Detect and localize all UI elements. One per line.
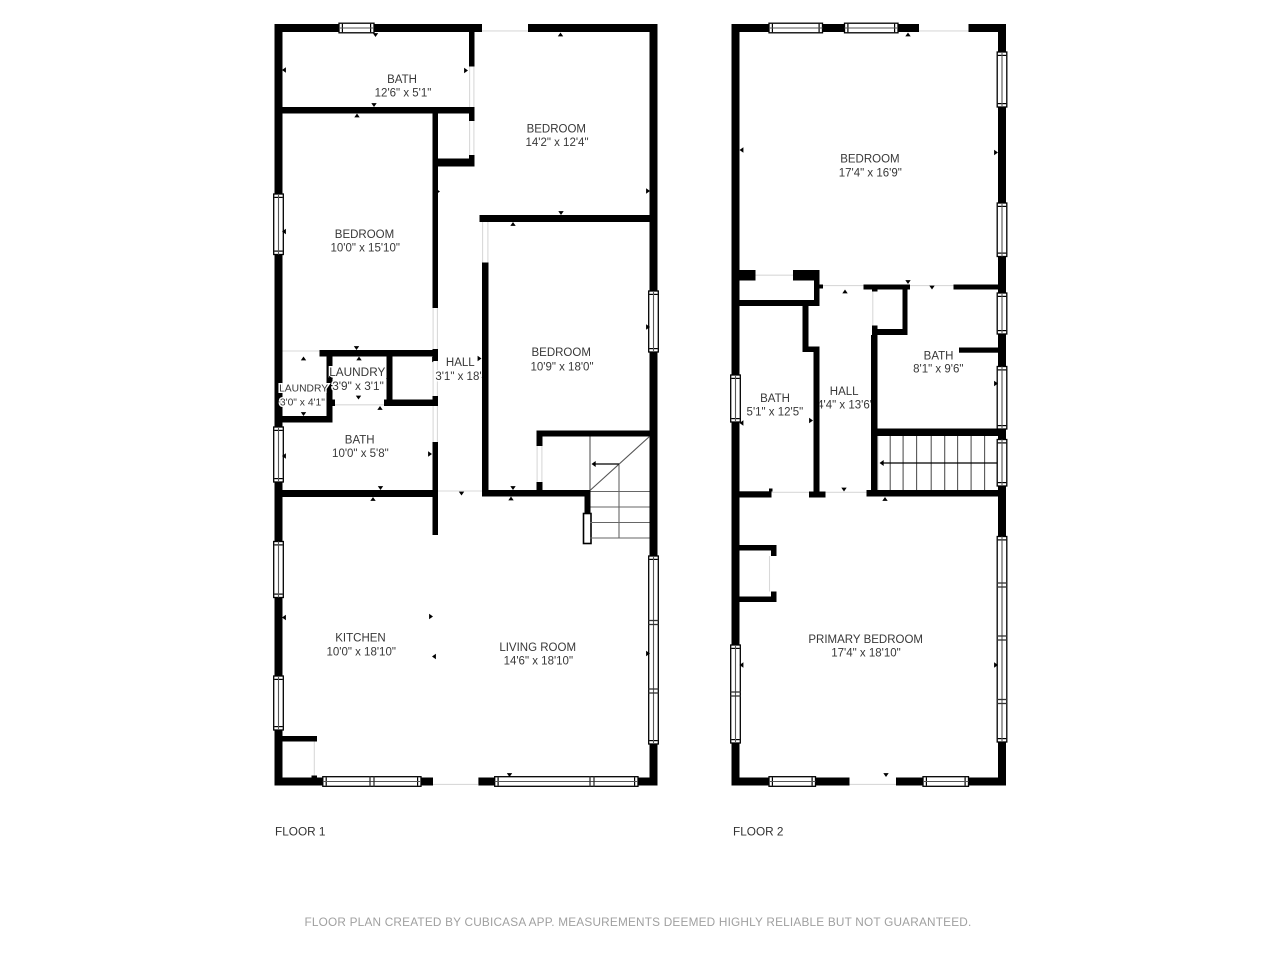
svg-text:14'2" x 12'4": 14'2" x 12'4" bbox=[525, 137, 588, 149]
svg-text:BATH: BATH bbox=[924, 351, 954, 363]
svg-text:12'6" x 5'1": 12'6" x 5'1" bbox=[375, 88, 432, 100]
svg-text:10'0" x 5'8": 10'0" x 5'8" bbox=[332, 448, 389, 460]
svg-text:8'1" x 9'6": 8'1" x 9'6" bbox=[913, 364, 963, 376]
svg-text:FLOOR 2: FLOOR 2 bbox=[733, 825, 783, 839]
svg-text:PRIMARY BEDROOM: PRIMARY BEDROOM bbox=[808, 634, 923, 646]
svg-text:3'0" x 4'1": 3'0" x 4'1" bbox=[280, 397, 325, 408]
svg-text:FLOOR 1: FLOOR 1 bbox=[275, 825, 325, 839]
svg-text:10'0" x 15'10": 10'0" x 15'10" bbox=[330, 242, 399, 254]
svg-text:10'0" x 18'10": 10'0" x 18'10" bbox=[326, 646, 395, 658]
svg-text:KITCHEN: KITCHEN bbox=[335, 632, 385, 644]
svg-text:BEDROOM: BEDROOM bbox=[527, 124, 586, 136]
svg-text:HALL: HALL bbox=[446, 357, 475, 369]
svg-text:BEDROOM: BEDROOM bbox=[531, 347, 590, 359]
svg-text:10'9" x 18'0": 10'9" x 18'0" bbox=[530, 361, 593, 373]
svg-text:14'6" x 18'10": 14'6" x 18'10" bbox=[504, 656, 573, 668]
svg-text:LAUNDRY: LAUNDRY bbox=[329, 365, 385, 379]
svg-text:17'4" x 18'10": 17'4" x 18'10" bbox=[831, 648, 900, 660]
svg-text:4'4" x 13'6": 4'4" x 13'6" bbox=[817, 399, 874, 411]
svg-text:5'1" x 12'5": 5'1" x 12'5" bbox=[747, 407, 804, 419]
svg-text:17'4" x 16'9": 17'4" x 16'9" bbox=[839, 168, 902, 180]
svg-text:BATH: BATH bbox=[387, 74, 417, 86]
svg-text:LIVING ROOM: LIVING ROOM bbox=[499, 642, 576, 654]
svg-text:LAUNDRY: LAUNDRY bbox=[279, 384, 328, 395]
svg-text:HALL: HALL bbox=[830, 386, 859, 398]
svg-text:BATH: BATH bbox=[345, 434, 375, 446]
svg-text:BEDROOM: BEDROOM bbox=[335, 229, 394, 241]
svg-text:3'9" x 3'1": 3'9" x 3'1" bbox=[332, 379, 384, 393]
svg-text:FLOOR PLAN CREATED BY CUBICASA: FLOOR PLAN CREATED BY CUBICASA APP. MEAS… bbox=[305, 915, 972, 929]
svg-text:BEDROOM: BEDROOM bbox=[840, 154, 899, 166]
svg-text:BATH: BATH bbox=[760, 393, 790, 405]
